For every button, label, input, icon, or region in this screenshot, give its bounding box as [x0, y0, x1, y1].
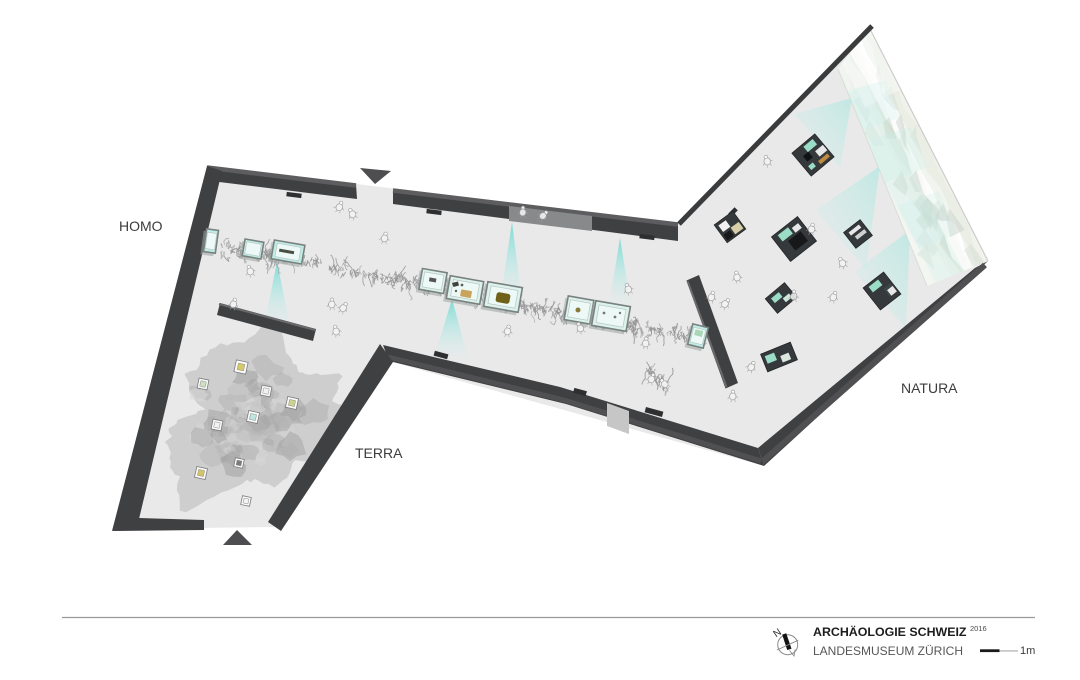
svg-text:2016: 2016 — [970, 624, 987, 633]
svg-text:LANDESMUSEUM ZÜRICH: LANDESMUSEUM ZÜRICH — [813, 644, 963, 658]
svg-text:N: N — [772, 627, 784, 640]
svg-text:1m: 1m — [1020, 645, 1035, 657]
svg-text:TERRA: TERRA — [355, 445, 403, 461]
svg-text:HOMO: HOMO — [119, 218, 163, 234]
svg-text:NATURA: NATURA — [901, 380, 958, 396]
svg-text:ARCHÄOLOGIE SCHWEIZ: ARCHÄOLOGIE SCHWEIZ — [813, 624, 967, 639]
